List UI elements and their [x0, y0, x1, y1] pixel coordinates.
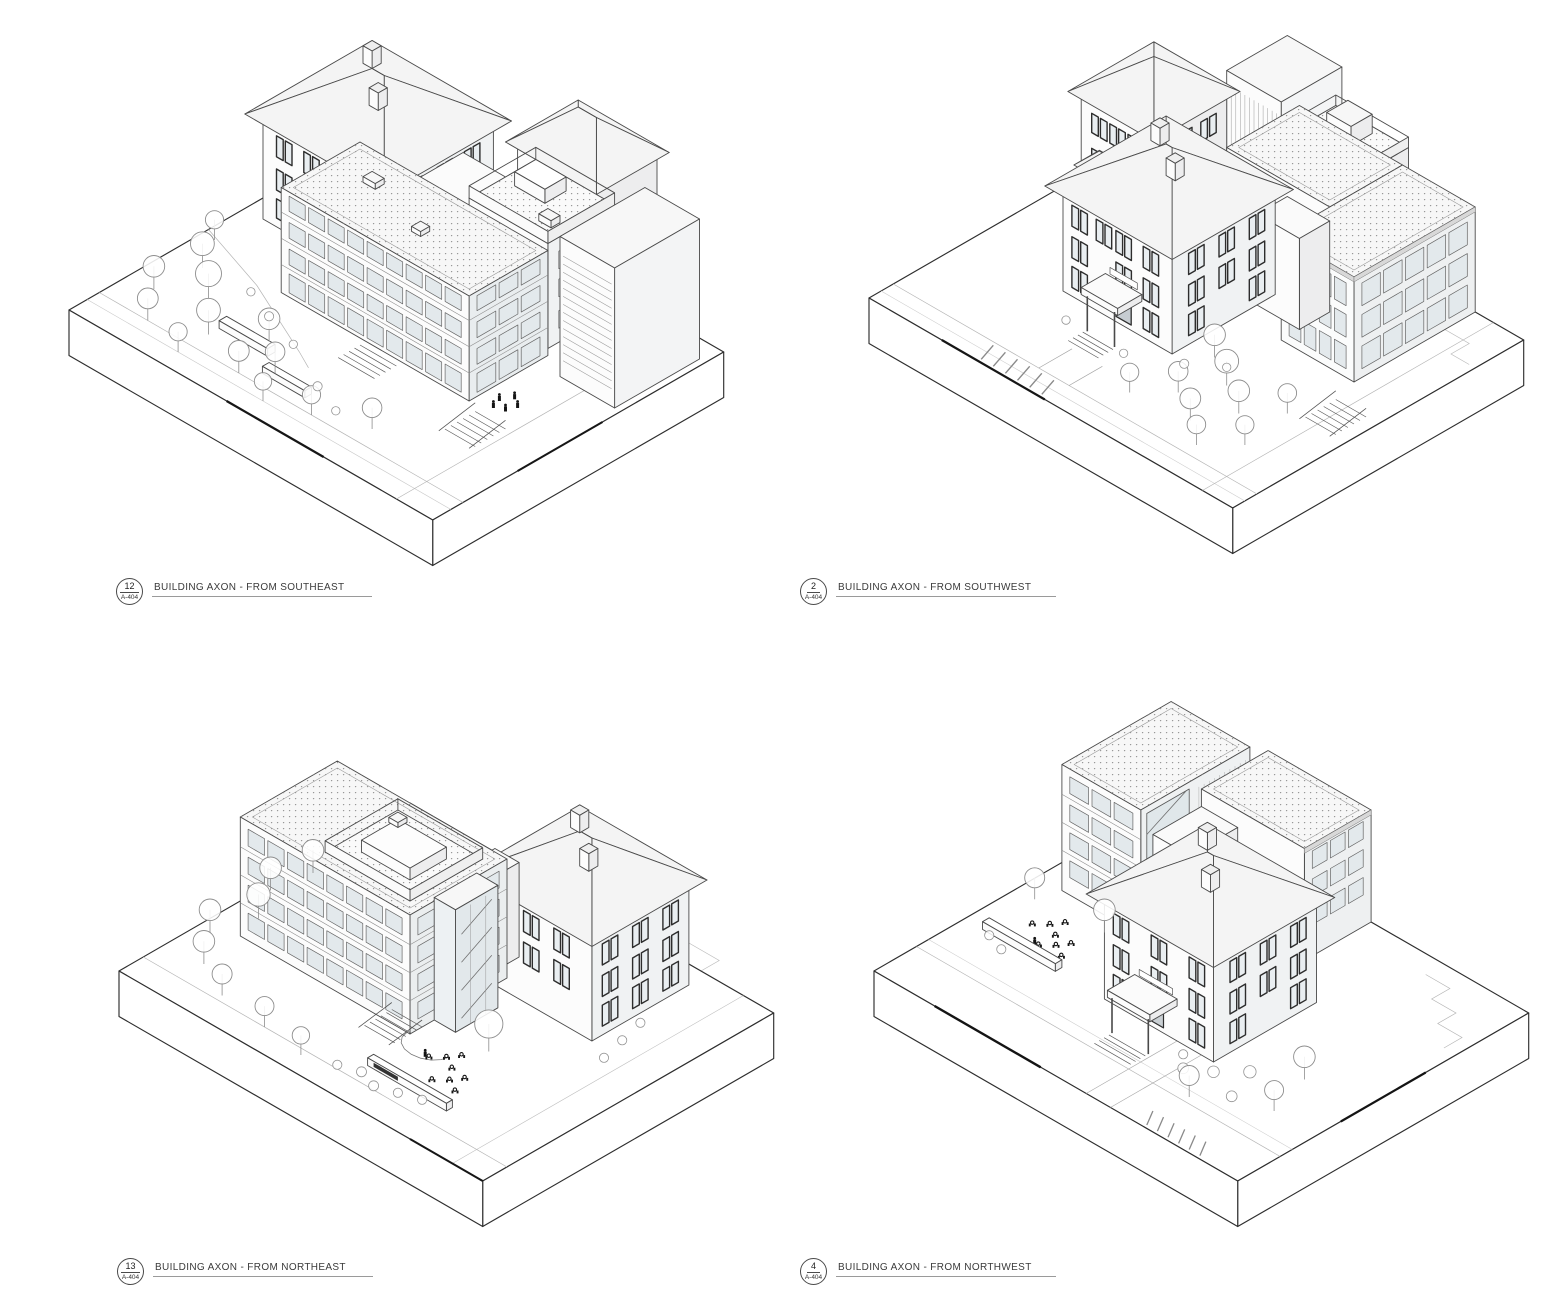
axon-drawing-from-southeast [0, 0, 775, 653]
axon-drawing-from-northeast [0, 653, 775, 1306]
axon-drawing-from-southwest [775, 0, 1550, 653]
sheet-number: A-404 [805, 1273, 822, 1282]
viewport-tag-northwest: 4 A-404 BUILDING AXON - FROM NORTHWEST [800, 1258, 1056, 1285]
sheet-number: A-404 [121, 593, 138, 602]
detail-bubble: 4 A-404 [800, 1258, 827, 1285]
sheet-number: A-404 [122, 1273, 139, 1282]
viewport-tag-southeast: 12 A-404 BUILDING AXON - FROM SOUTHEAST [116, 578, 372, 605]
view-title: BUILDING AXON - FROM SOUTHEAST [152, 582, 372, 597]
detail-bubble: 2 A-404 [800, 578, 827, 605]
viewport-tag-northeast: 13 A-404 BUILDING AXON - FROM NORTHEAST [117, 1258, 373, 1285]
detail-number: 2 [807, 581, 820, 593]
sheet-number: A-404 [805, 593, 822, 602]
view-title: BUILDING AXON - FROM SOUTHWEST [836, 582, 1056, 597]
viewport-tag-southwest: 2 A-404 BUILDING AXON - FROM SOUTHWEST [800, 578, 1056, 605]
detail-number: 12 [120, 581, 138, 593]
view-title: BUILDING AXON - FROM NORTHWEST [836, 1262, 1056, 1277]
detail-number: 13 [121, 1261, 139, 1273]
detail-bubble: 12 A-404 [116, 578, 143, 605]
drawing-sheet: 12 A-404 BUILDING AXON - FROM SOUTHEAST … [0, 0, 1550, 1306]
detail-number: 4 [807, 1261, 820, 1273]
view-title: BUILDING AXON - FROM NORTHEAST [153, 1262, 373, 1277]
axon-drawing-from-northwest [775, 653, 1550, 1306]
detail-bubble: 13 A-404 [117, 1258, 144, 1285]
